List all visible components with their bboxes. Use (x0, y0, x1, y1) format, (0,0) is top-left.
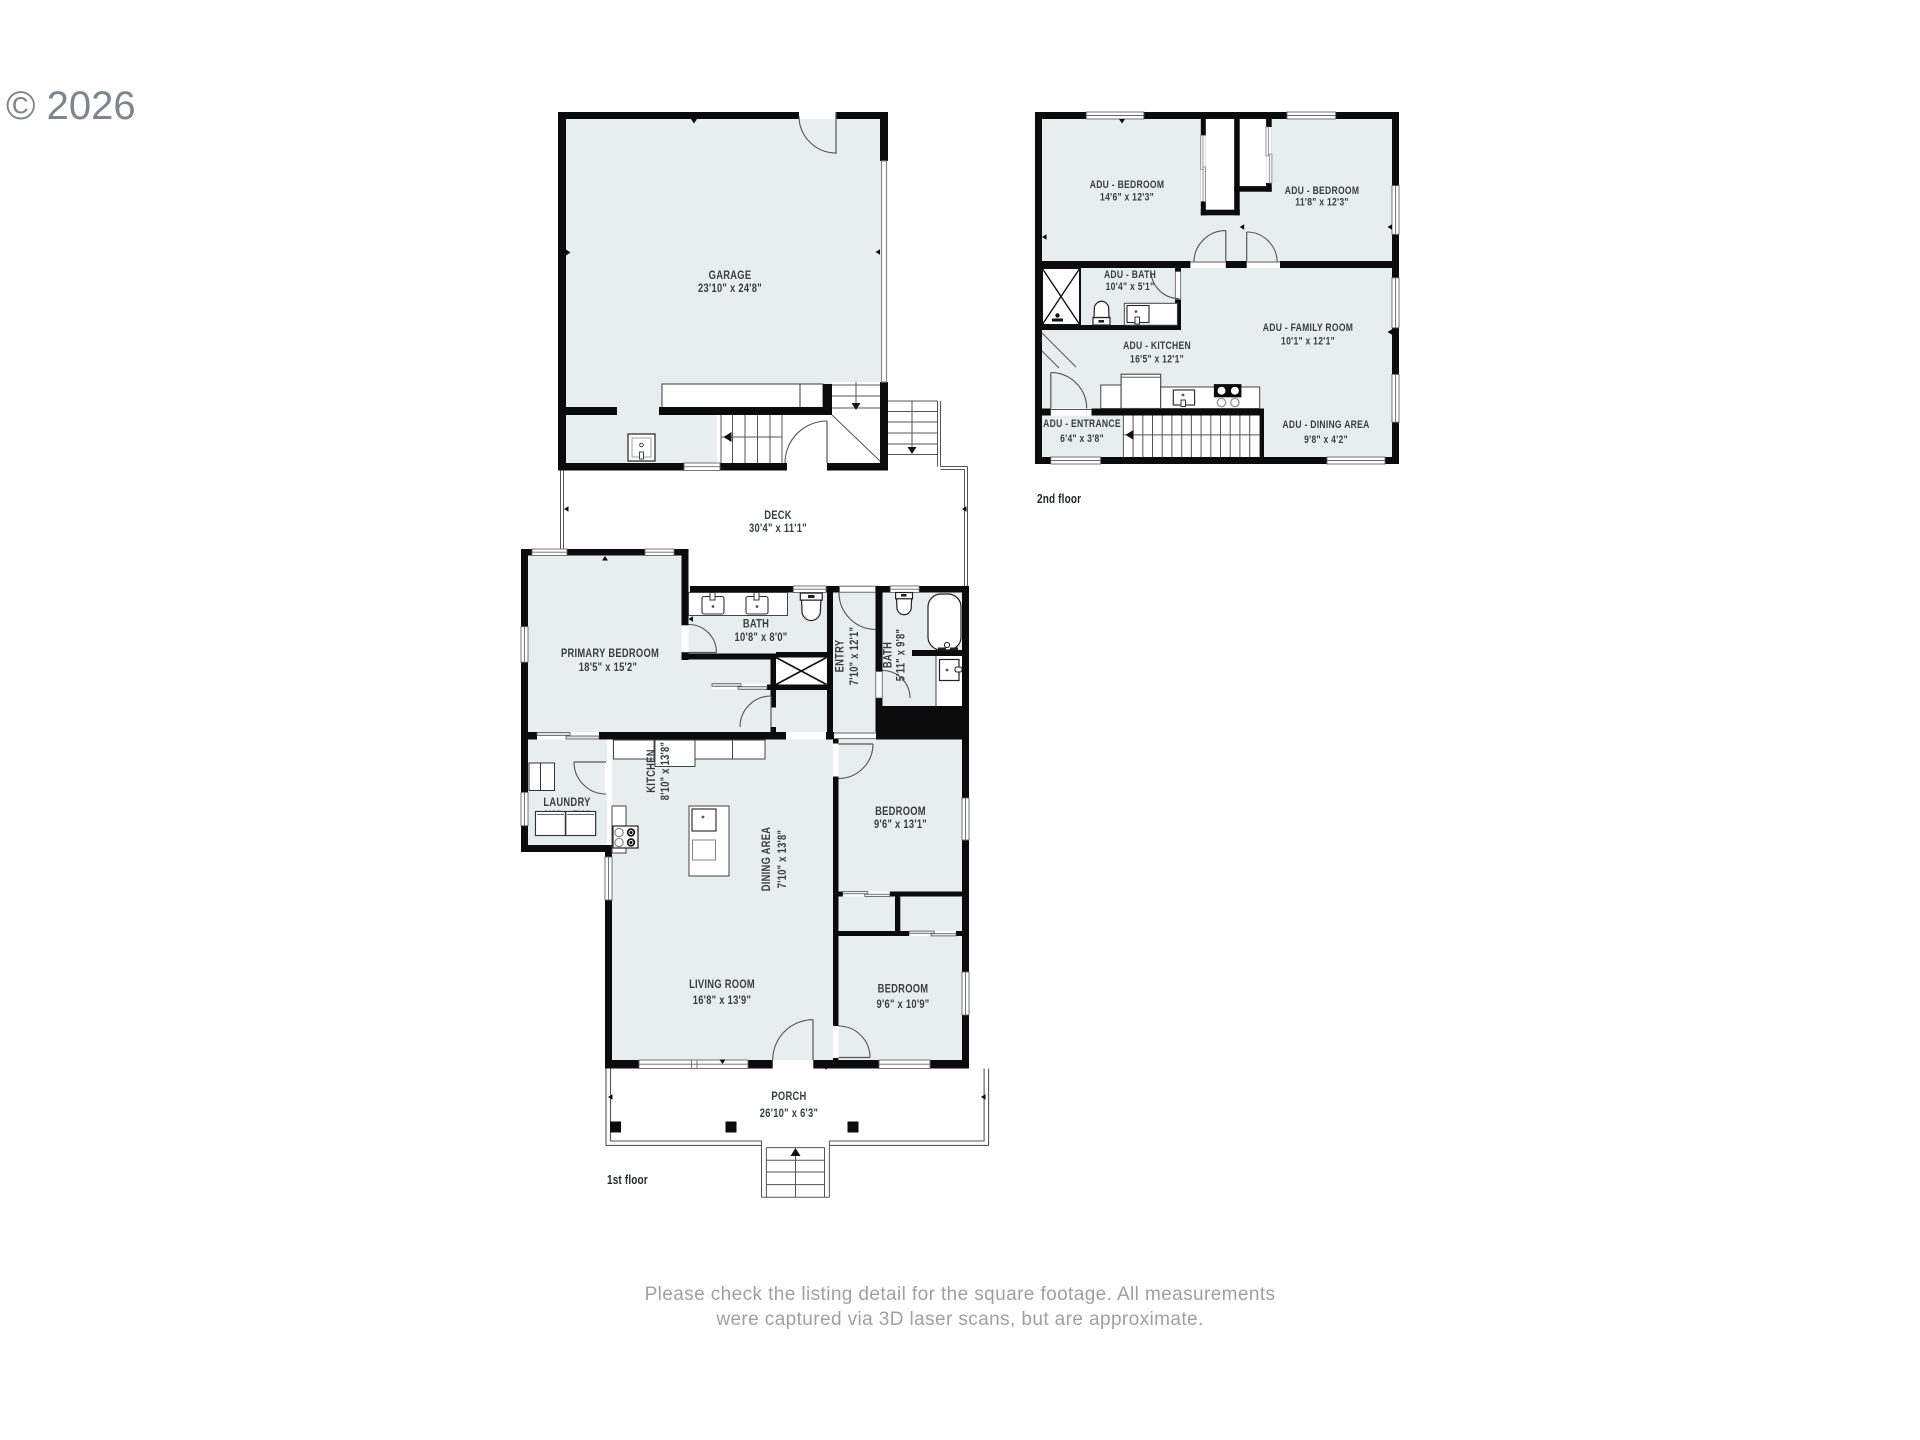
svg-text:10'8" x 8'0": 10'8" x 8'0" (735, 631, 788, 644)
svg-text:23'10" x 24'8": 23'10" x 24'8" (698, 282, 762, 295)
svg-text:2nd floor: 2nd floor (1037, 493, 1082, 506)
svg-text:10'4" x 5'1": 10'4" x 5'1" (1106, 281, 1155, 293)
svg-text:ADU - BATH: ADU - BATH (1104, 269, 1156, 281)
svg-text:9'8" x 4'2": 9'8" x 4'2" (1304, 434, 1348, 446)
svg-text:PRIMARY BEDROOM: PRIMARY BEDROOM (561, 647, 659, 660)
svg-text:7'10" x 13'8": 7'10" x 13'8" (776, 830, 789, 888)
svg-text:BATH: BATH (881, 642, 894, 668)
svg-text:30'4" x 11'1": 30'4" x 11'1" (749, 522, 807, 535)
svg-text:14'6" x 12'3": 14'6" x 12'3" (1100, 192, 1154, 204)
svg-text:11'8" x 12'3": 11'8" x 12'3" (1295, 197, 1348, 209)
svg-text:8'10" x 13'8": 8'10" x 13'8" (659, 742, 672, 800)
svg-text:Please check the listing detai: Please check the listing detail for the … (645, 1284, 1276, 1305)
svg-text:10'1" x 12'1": 10'1" x 12'1" (1281, 336, 1335, 348)
svg-text:BEDROOM: BEDROOM (878, 982, 929, 995)
svg-text:PORCH: PORCH (771, 1090, 806, 1103)
svg-text:DECK: DECK (764, 509, 792, 522)
svg-text:KITCHEN: KITCHEN (645, 749, 658, 792)
svg-text:ENTRY: ENTRY (833, 640, 846, 673)
svg-text:BEDROOM: BEDROOM (875, 805, 926, 818)
svg-text:LAUNDRY: LAUNDRY (543, 796, 590, 809)
svg-text:© 2026: © 2026 (6, 84, 136, 128)
svg-text:7'10" x 12'1": 7'10" x 12'1" (848, 627, 861, 685)
svg-text:BATH: BATH (743, 617, 769, 630)
svg-text:ADU - ENTRANCE: ADU - ENTRANCE (1043, 418, 1121, 430)
svg-text:ADU - BEDROOM: ADU - BEDROOM (1285, 185, 1360, 197)
svg-text:16'8" x 13'9": 16'8" x 13'9" (693, 994, 751, 1007)
svg-text:ADU - KITCHEN: ADU - KITCHEN (1123, 340, 1191, 352)
svg-text:9'6" x 10'9": 9'6" x 10'9" (877, 998, 930, 1011)
svg-text:ADU - BEDROOM: ADU - BEDROOM (1090, 179, 1165, 191)
svg-text:were captured via 3D laser sca: were captured via 3D laser scans, but ar… (715, 1309, 1203, 1330)
svg-text:6'4" x 3'8": 6'4" x 3'8" (1060, 433, 1104, 445)
svg-text:ADU - FAMILY ROOM: ADU - FAMILY ROOM (1263, 322, 1353, 334)
svg-text:1st floor: 1st floor (607, 1174, 648, 1187)
svg-text:26'10" x 6'3": 26'10" x 6'3" (760, 1107, 818, 1120)
svg-text:ADU - DINING AREA: ADU - DINING AREA (1282, 419, 1369, 431)
svg-text:GARAGE: GARAGE (709, 269, 752, 282)
svg-text:5'11" x 9'8": 5'11" x 9'8" (894, 629, 907, 681)
svg-text:LIVING ROOM: LIVING ROOM (689, 978, 755, 991)
svg-text:DINING AREA: DINING AREA (760, 827, 773, 891)
svg-text:16'5" x 12'1": 16'5" x 12'1" (1130, 354, 1184, 366)
svg-text:18'5" x 15'2": 18'5" x 15'2" (579, 661, 637, 674)
svg-text:9'6" x 13'1": 9'6" x 13'1" (874, 818, 927, 831)
